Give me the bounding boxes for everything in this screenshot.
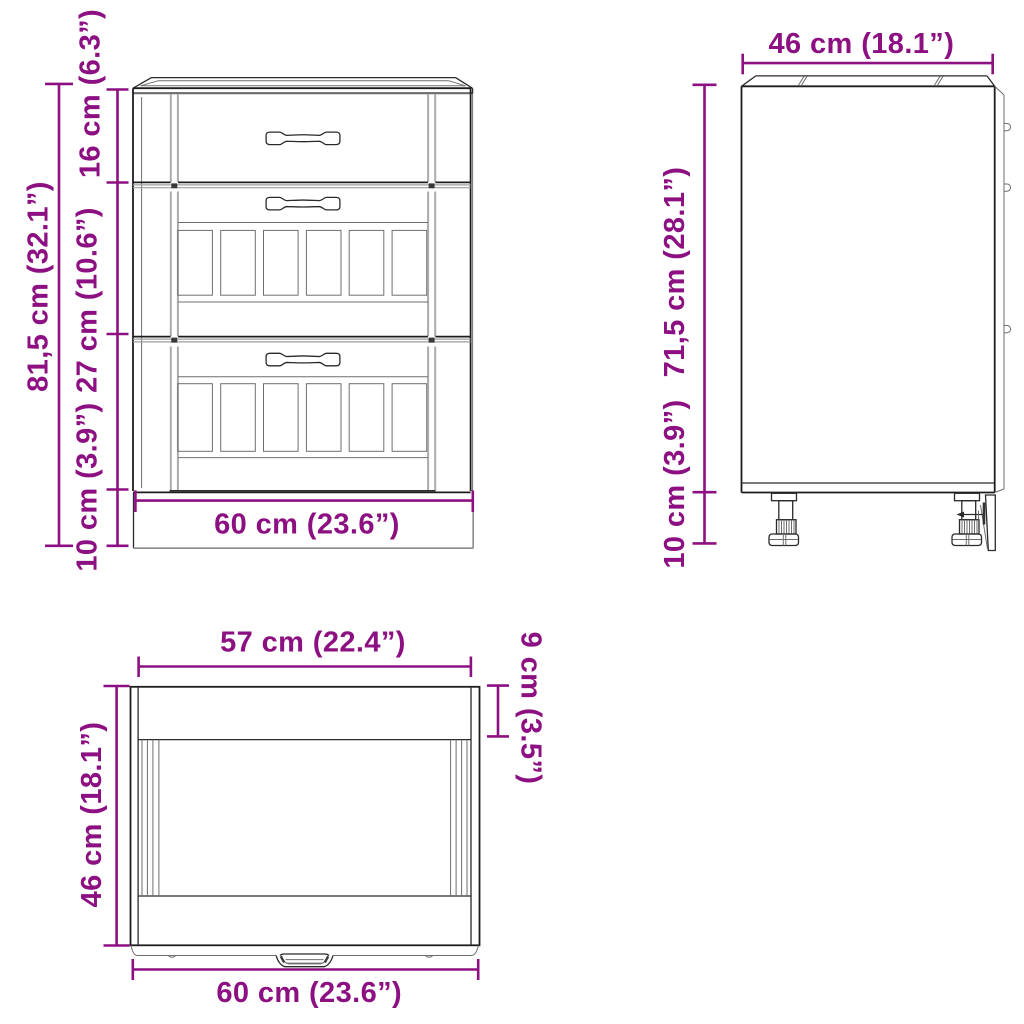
- svg-text:9 cm (3.5”): 9 cm (3.5”): [515, 632, 547, 785]
- svg-text:60 cm (23.6”): 60 cm (23.6”): [214, 509, 400, 541]
- svg-text:46 cm (18.1”): 46 cm (18.1”): [769, 28, 955, 60]
- svg-text:46 cm (18.1”): 46 cm (18.1”): [76, 722, 108, 908]
- svg-text:71,5 cm (28.1”): 71,5 cm (28.1”): [659, 167, 691, 378]
- svg-text:16 cm (6.3”): 16 cm (6.3”): [75, 9, 107, 178]
- svg-text:10 cm (3.9”): 10 cm (3.9”): [72, 402, 104, 571]
- svg-text:81,5 cm (32.1”): 81,5 cm (32.1”): [23, 181, 55, 392]
- svg-text:27 cm (10.6”): 27 cm (10.6”): [72, 207, 104, 393]
- svg-text:10 cm (3.9”): 10 cm (3.9”): [659, 399, 691, 568]
- svg-text:60 cm (23.6”): 60 cm (23.6”): [216, 977, 402, 1009]
- svg-text:57 cm (22.4”): 57 cm (22.4”): [220, 627, 406, 659]
